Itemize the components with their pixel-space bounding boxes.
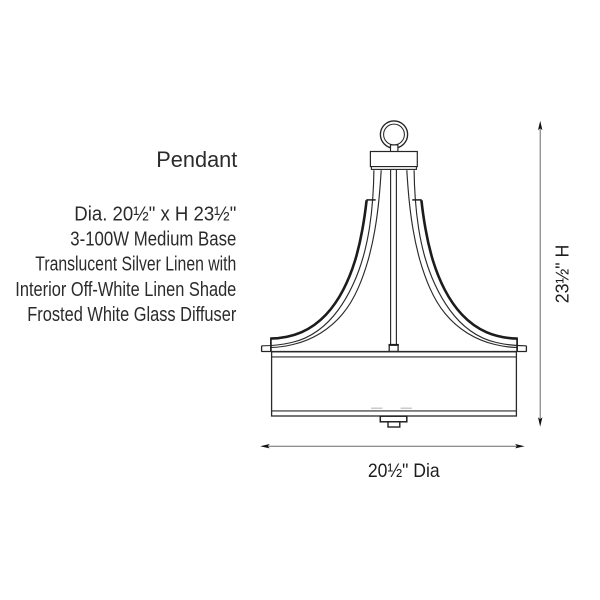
svg-text:Pendant: Pendant <box>156 147 237 172</box>
svg-text:Frosted White Glass Diffuser: Frosted White Glass Diffuser <box>27 303 236 326</box>
svg-text:23½" H: 23½" H <box>552 245 573 304</box>
svg-text:3-100W Medium Base: 3-100W Medium Base <box>70 228 236 251</box>
svg-text:20½" Dia: 20½" Dia <box>368 460 440 482</box>
svg-text:Interior Off-White Linen Shade: Interior Off-White Linen Shade <box>15 278 236 301</box>
svg-text:Dia. 20½" x H 23½": Dia. 20½" x H 23½" <box>74 203 236 226</box>
svg-text:Translucent Silver Linen with: Translucent Silver Linen with <box>35 253 236 276</box>
